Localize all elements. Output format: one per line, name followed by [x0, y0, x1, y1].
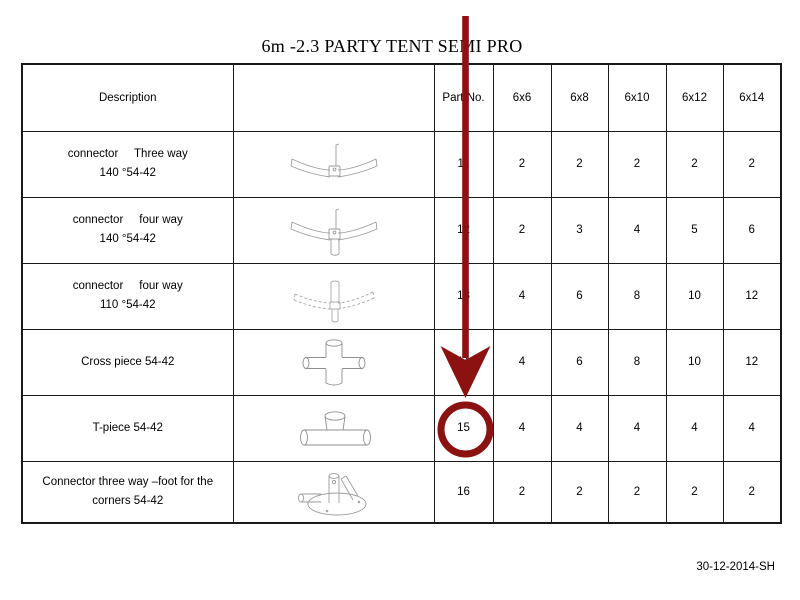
three-way-connector-140-icon [279, 136, 389, 192]
header-part-no: Part No. [434, 64, 493, 131]
quantity-cell: 2 [551, 461, 608, 523]
quantity-cell: 10 [666, 329, 723, 395]
cross-piece-icon [279, 333, 389, 391]
quantity-cell: 8 [608, 263, 666, 329]
description-text: connector Three way [23, 145, 233, 164]
quantity-cell: 2 [493, 461, 551, 523]
parts-table-wrap: Description Part No. 6x6 6x8 6x10 6x12 6… [21, 63, 782, 524]
quantity-cell: 4 [608, 197, 666, 263]
part-no-cell: 11 [434, 131, 493, 197]
parts-list-page: 6m -2.3 PARTY TENT SEMI PRO Description … [0, 0, 800, 600]
part-image-cell [233, 197, 434, 263]
description-text: T-piece 54-42 [23, 419, 233, 438]
description-cell: Cross piece 54-42 [22, 329, 233, 395]
part-image-cell [233, 395, 434, 461]
quantity-cell: 12 [723, 329, 781, 395]
table-row: Cross piece 54-42 14 4 [22, 329, 781, 395]
description-text: Connector three way –foot for the [23, 473, 233, 492]
table-row: connector four way 140 °54-42 12 [22, 197, 781, 263]
table-row: T-piece 54-42 15 4 4 4 [22, 395, 781, 461]
quantity-cell: 3 [551, 197, 608, 263]
header-size-6x12: 6x12 [666, 64, 723, 131]
description-text: Cross piece 54-42 [23, 353, 233, 372]
header-size-6x6: 6x6 [493, 64, 551, 131]
part-no-cell: 15 [434, 395, 493, 461]
part-no-cell: 14 [434, 329, 493, 395]
quantity-cell: 4 [608, 395, 666, 461]
quantity-cell: 6 [551, 263, 608, 329]
header-description: Description [22, 64, 233, 131]
quantity-cell: 4 [551, 395, 608, 461]
header-size-6x8: 6x8 [551, 64, 608, 131]
quantity-cell: 2 [666, 461, 723, 523]
description-cell: connector four way 110 °54-42 [22, 263, 233, 329]
header-row: Description Part No. 6x6 6x8 6x10 6x12 6… [22, 64, 781, 131]
quantity-cell: 12 [723, 263, 781, 329]
quantity-cell: 4 [666, 395, 723, 461]
page-title: 6m -2.3 PARTY TENT SEMI PRO [0, 36, 784, 57]
quantity-cell: 2 [666, 131, 723, 197]
part-image-cell [233, 263, 434, 329]
description-text: connector four way [23, 211, 233, 230]
part-image-cell [233, 131, 434, 197]
description-cell: connector four way 140 °54-42 [22, 197, 233, 263]
quantity-cell: 4 [493, 329, 551, 395]
quantity-cell: 2 [608, 461, 666, 523]
quantity-cell: 4 [493, 395, 551, 461]
corner-foot-connector-icon [279, 463, 389, 521]
part-image-cell [233, 329, 434, 395]
table-row: Connector three way –foot for the corner… [22, 461, 781, 523]
description-text: 140 °54-42 [23, 230, 233, 249]
description-cell: T-piece 54-42 [22, 395, 233, 461]
description-cell: Connector three way –foot for the corner… [22, 461, 233, 523]
quantity-cell: 2 [723, 131, 781, 197]
description-text: 140 °54-42 [23, 164, 233, 183]
t-piece-icon [279, 400, 389, 456]
quantity-cell: 10 [666, 263, 723, 329]
part-image-cell [233, 461, 434, 523]
parts-table: Description Part No. 6x6 6x8 6x10 6x12 6… [21, 63, 782, 524]
quantity-cell: 2 [493, 197, 551, 263]
description-cell: connector Three way 140 °54-42 [22, 131, 233, 197]
quantity-cell: 8 [608, 329, 666, 395]
header-size-6x14: 6x14 [723, 64, 781, 131]
quantity-cell: 2 [608, 131, 666, 197]
description-text: 110 °54-42 [23, 296, 233, 315]
quantity-cell: 5 [666, 197, 723, 263]
quantity-cell: 4 [723, 395, 781, 461]
table-row: connector four way 110 °54-42 [22, 263, 781, 329]
four-way-connector-110-icon [279, 268, 389, 324]
document-code: 30-12-2014-SH [696, 561, 775, 573]
quantity-cell: 4 [493, 263, 551, 329]
part-no-cell: 13 [434, 263, 493, 329]
part-no-cell: 16 [434, 461, 493, 523]
quantity-cell: 6 [723, 197, 781, 263]
header-image-column [233, 64, 434, 131]
table-row: connector Three way 140 °54-42 11 2 [22, 131, 781, 197]
quantity-cell: 2 [723, 461, 781, 523]
four-way-connector-140-icon [279, 202, 389, 258]
description-text: corners 54-42 [23, 492, 233, 511]
header-size-6x10: 6x10 [608, 64, 666, 131]
part-no-cell: 12 [434, 197, 493, 263]
quantity-cell: 2 [493, 131, 551, 197]
description-text: connector four way [23, 277, 233, 296]
quantity-cell: 2 [551, 131, 608, 197]
quantity-cell: 6 [551, 329, 608, 395]
